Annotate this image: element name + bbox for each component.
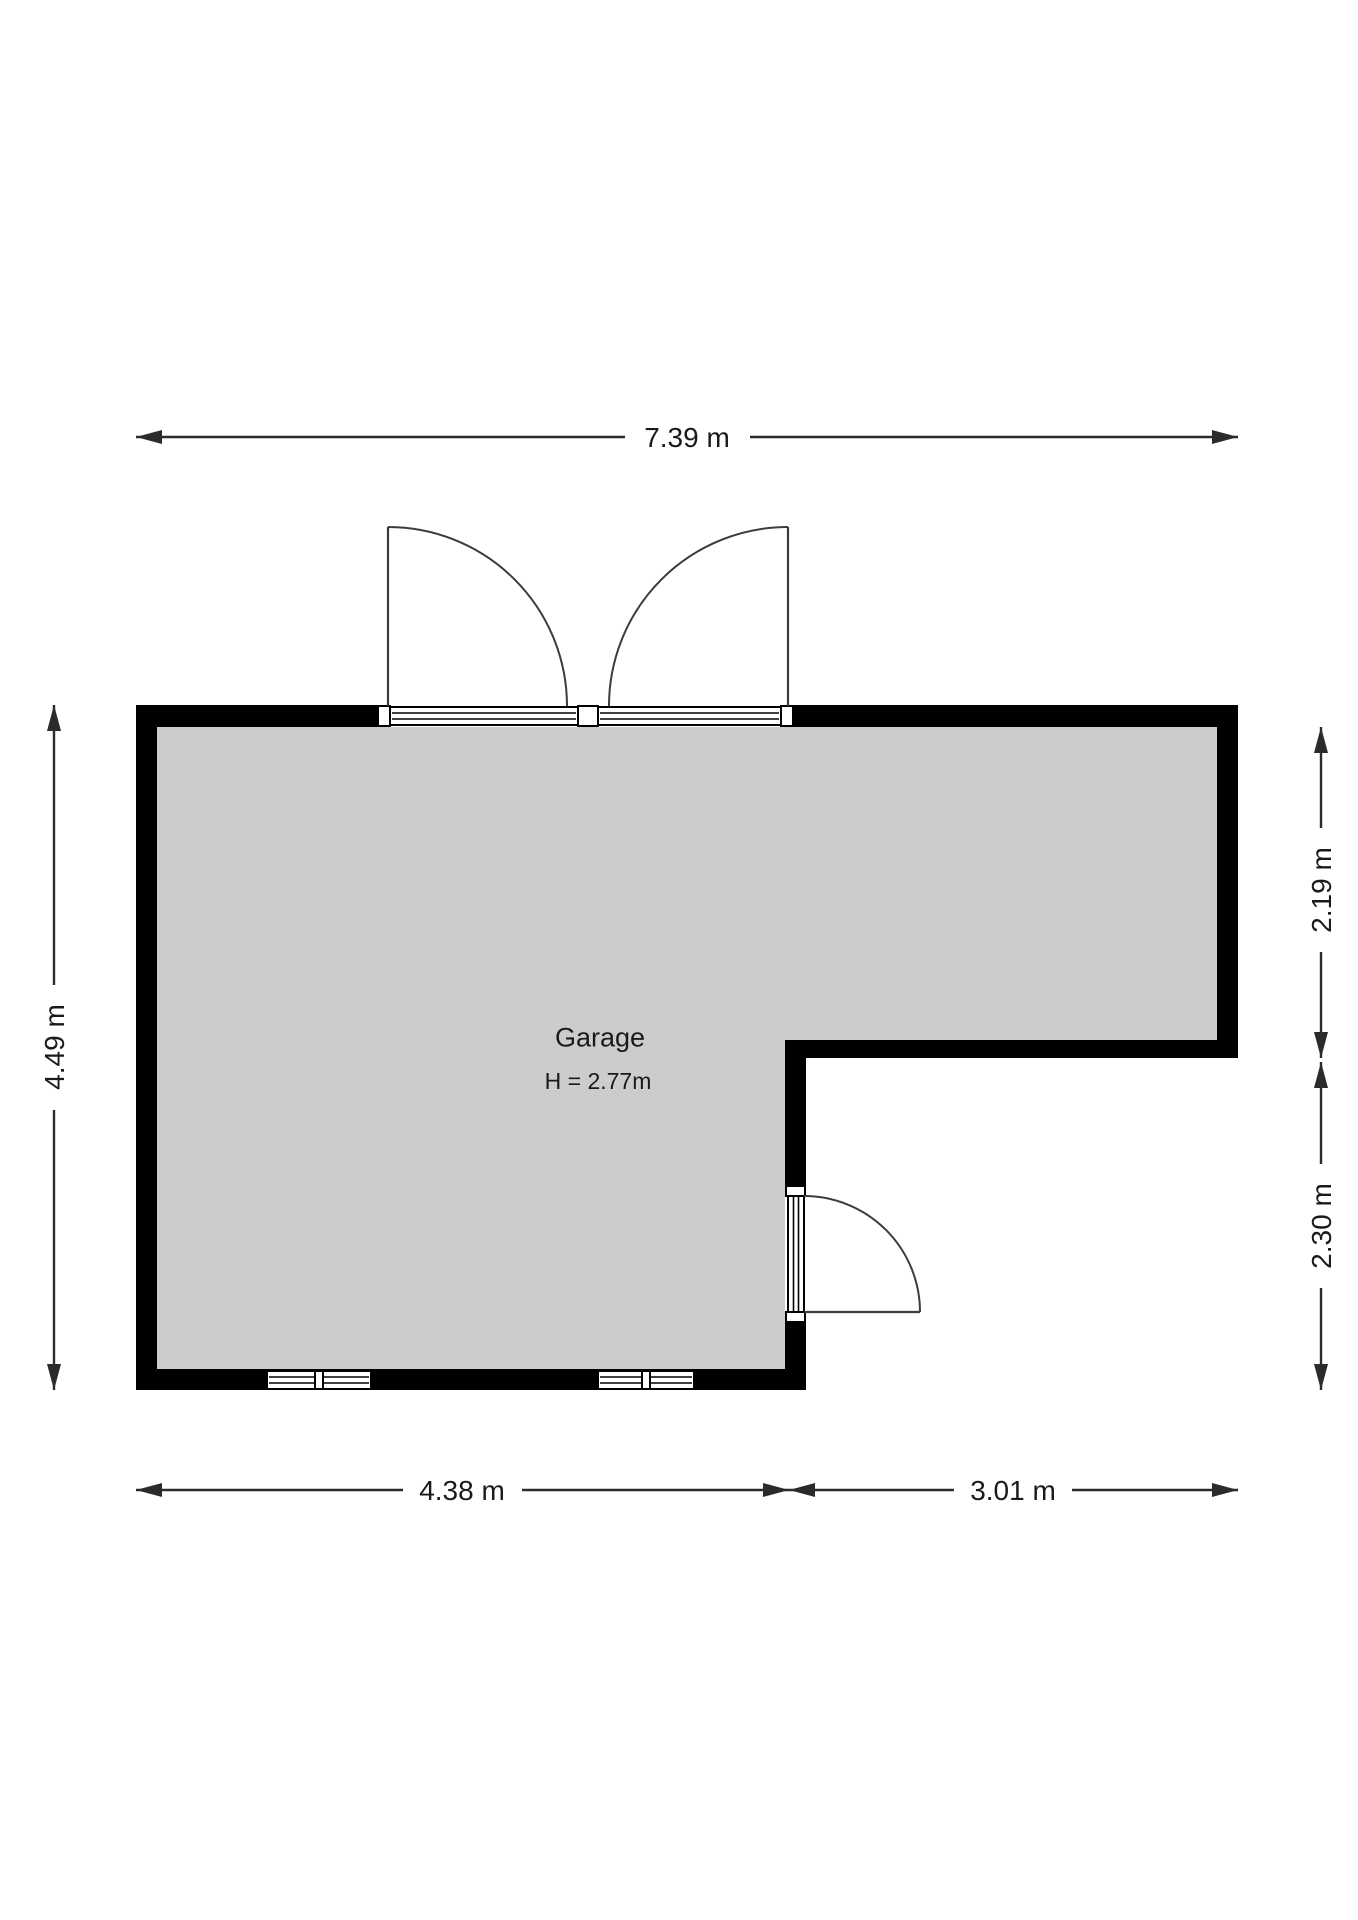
dimension-right-upper: 2.19 m (1306, 727, 1337, 1058)
door-sill-right (598, 707, 781, 725)
wall-notch-vertical-upper (785, 1040, 806, 1186)
dimension-label-bottom-right: 3.01 m (970, 1475, 1056, 1506)
garage-double-door (378, 527, 793, 727)
side-door-frame (788, 1196, 804, 1312)
room-label: Garage (555, 1022, 645, 1052)
dimension-left: 4.49 m (39, 705, 70, 1390)
dimension-bottom-left: 4.38 m (136, 1475, 789, 1506)
door-sill-left (390, 707, 578, 725)
side-door (785, 1186, 920, 1322)
room-height-label: H = 2.77m (545, 1068, 652, 1094)
floorplan-canvas: 7.39 m 4.49 m 2.19 m 2.30 m 4.38 m (0, 0, 1358, 1920)
dimension-label-right-lower: 2.30 m (1306, 1183, 1337, 1269)
door-swing-arc-left (388, 527, 567, 706)
door-jamb-left (378, 706, 390, 726)
side-door-swing-arc (804, 1196, 920, 1312)
floorplan-page: 7.39 m 4.49 m 2.19 m 2.30 m 4.38 m (0, 0, 1358, 1920)
dimension-label-top: 7.39 m (644, 422, 730, 453)
window-left-mullion (315, 1371, 323, 1389)
dimension-label-bottom-left: 4.38 m (419, 1475, 505, 1506)
side-door-jamb-bottom (786, 1312, 805, 1322)
dimension-label-right-upper: 2.19 m (1306, 847, 1337, 933)
dimension-right-lower: 2.30 m (1306, 1062, 1337, 1390)
wall-left (136, 705, 157, 1390)
door-center-stile (578, 706, 598, 726)
dimension-bottom-right: 3.01 m (789, 1475, 1238, 1506)
dimension-top: 7.39 m (136, 422, 1238, 453)
wall-bottom (136, 1369, 806, 1390)
dimension-label-left: 4.49 m (39, 1004, 70, 1090)
door-swing-arc-right (609, 527, 788, 706)
wall-notch-horizontal (785, 1040, 1238, 1058)
window-right-mullion (642, 1371, 650, 1389)
wall-right-upper (1217, 705, 1238, 1058)
side-door-jamb-top (786, 1186, 805, 1196)
door-jamb-right (781, 706, 793, 726)
